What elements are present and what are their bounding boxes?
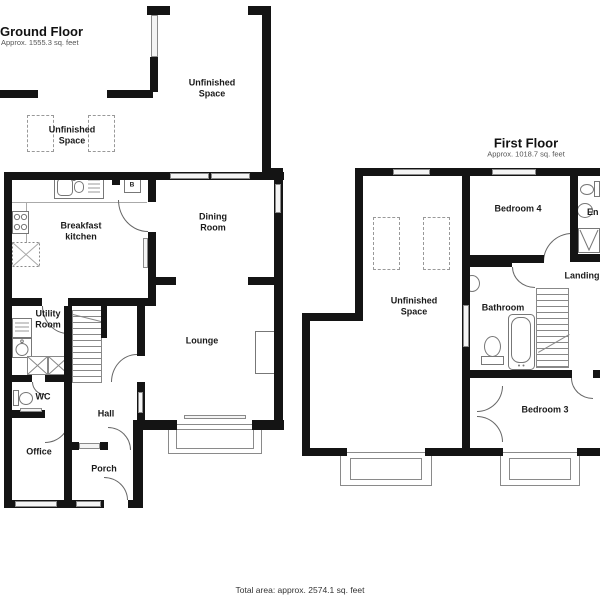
- bay-window-frame: [176, 429, 254, 449]
- wall-segment: [100, 442, 108, 450]
- wall-segment: [302, 313, 363, 321]
- washing-machine-icon: [12, 318, 32, 338]
- window: [143, 238, 148, 268]
- wall-segment: [156, 277, 176, 285]
- plan-element: [508, 314, 535, 370]
- wall-segment: [107, 90, 153, 98]
- fixture: [594, 181, 600, 197]
- wall-segment: [0, 90, 38, 98]
- plan-element: [12, 338, 32, 358]
- first-floor-title: First Floor: [494, 136, 558, 151]
- wall-segment: [262, 6, 271, 172]
- room-label-unfinished-space: Unfinished Space: [183, 77, 241, 98]
- wall-segment: [470, 260, 512, 267]
- bay-window-frame: [509, 458, 571, 480]
- first-floor-stairs: [536, 288, 569, 368]
- fixture: [481, 356, 504, 365]
- room-label-hall: Hall: [98, 409, 115, 420]
- dashed-outline: [373, 217, 400, 270]
- window: [170, 173, 209, 179]
- door-swing-arc: [104, 477, 128, 500]
- wall-segment: [302, 313, 310, 456]
- wall-segment: [248, 277, 282, 285]
- window: [211, 173, 250, 179]
- room-label-bathroom: Bathroom: [482, 303, 525, 314]
- plan-element: [12, 242, 40, 267]
- fixture: [19, 392, 33, 405]
- wardrobe-door-arc: [477, 416, 503, 442]
- plan-element: [13, 243, 40, 267]
- room-label-porch: Porch: [91, 464, 117, 475]
- door-swing-arc: [543, 233, 572, 262]
- room-label-utility-room: Utility Room: [30, 308, 66, 329]
- door-swing-arc: [108, 427, 131, 450]
- plan-element: [13, 319, 32, 338]
- lounge-radiator: [184, 415, 246, 419]
- plan-element: [27, 356, 48, 375]
- wall-segment: [355, 168, 363, 320]
- room-label-unfinished-space: Unfinished Space: [385, 295, 443, 316]
- ground-floor-title: Ground Floor: [0, 24, 83, 39]
- wall-segment: [4, 298, 42, 306]
- appliance-space-icon: [12, 242, 40, 267]
- wall-segment: [64, 442, 79, 450]
- room-label-bedroom-4: Bedroom 4: [494, 204, 541, 215]
- window: [79, 443, 100, 449]
- hob-icon: [12, 211, 29, 234]
- ground-floor-area: Approx. 1555.3 sq. feet: [1, 38, 79, 47]
- wall-segment: [570, 176, 578, 256]
- room-label-unfinished-space: Unfinished Space: [43, 124, 101, 145]
- shower-icon: [578, 228, 600, 253]
- wall-segment: [68, 298, 156, 306]
- wall-segment: [147, 6, 170, 15]
- wall-segment: [64, 380, 72, 410]
- plan-element: [578, 228, 600, 253]
- plan-element: [518, 365, 520, 367]
- door-swing-arc: [571, 378, 593, 399]
- room-label-breakfast-kitchen: Breakfast kitchen: [55, 220, 107, 241]
- wall-segment: [137, 306, 145, 356]
- wall-segment: [425, 448, 503, 456]
- room-label-ensuite: En: [587, 207, 599, 218]
- room-label-landing: Landing: [565, 271, 600, 282]
- room-label-office: Office: [26, 447, 52, 458]
- wc-radiator: [20, 408, 42, 412]
- floor-plan: Ground Floor Approx. 1555.3 sq. feet Fir…: [0, 0, 600, 600]
- room-label-lounge: Lounge: [186, 336, 219, 347]
- wall-segment: [112, 172, 120, 185]
- wall-segment: [302, 448, 347, 456]
- wall-segment: [4, 375, 32, 382]
- window: [275, 184, 281, 213]
- utility-sink-icon: [12, 338, 32, 358]
- window: [138, 392, 143, 413]
- wall-segment: [577, 448, 600, 456]
- wall-segment: [462, 370, 572, 378]
- wall-segment: [143, 420, 177, 430]
- bay-window-frame: [350, 458, 422, 480]
- wall-segment: [148, 232, 156, 306]
- room-label-bedroom-3: Bedroom 3: [521, 405, 568, 416]
- plan-element: [13, 339, 32, 358]
- room-label-wc: WC: [36, 392, 51, 403]
- toilet-icon: [484, 336, 501, 357]
- wall-segment: [101, 306, 107, 338]
- wall-segment: [593, 370, 600, 378]
- wall-segment: [355, 168, 600, 176]
- total-area-footer: Total area: approx. 2574.1 sq. feet: [235, 585, 364, 595]
- wall-segment: [45, 375, 65, 382]
- door-swing-arc: [512, 267, 535, 288]
- plan-element: [12, 211, 29, 234]
- wall-segment: [570, 254, 600, 262]
- boiler-label: B: [130, 182, 135, 189]
- window: [463, 305, 469, 347]
- wardrobe-door-arc: [477, 386, 503, 412]
- wall-segment: [133, 420, 143, 508]
- wall-segment: [148, 180, 156, 202]
- wall-segment: [64, 410, 72, 508]
- toilet-icon: [580, 184, 594, 195]
- window: [151, 15, 158, 57]
- wall-segment: [150, 57, 158, 92]
- room-label-dining-room: Dining Room: [195, 211, 231, 232]
- dashed-outline: [423, 217, 450, 270]
- window: [15, 501, 57, 507]
- door-swing-arc: [111, 354, 137, 382]
- window: [393, 169, 430, 175]
- fireplace: [255, 331, 275, 374]
- door-swing-arc: [118, 200, 148, 232]
- plan-element: [523, 365, 525, 367]
- wall-segment: [4, 172, 12, 508]
- window: [492, 169, 536, 175]
- plan-element: [12, 318, 32, 338]
- first-floor-area: Approx. 1018.7 sq. feet: [487, 150, 565, 159]
- appliance-space-icon: [27, 356, 48, 375]
- window: [76, 501, 101, 507]
- bathtub-icon: [508, 314, 535, 370]
